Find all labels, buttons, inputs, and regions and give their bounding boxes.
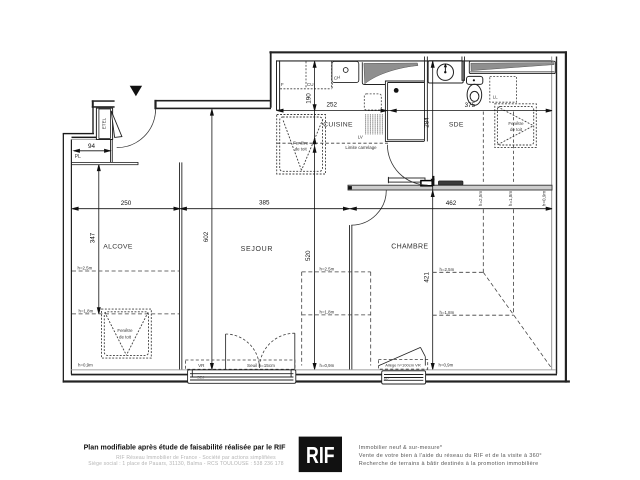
svg-text:ETEL: ETEL [102,117,107,129]
svg-text:252: 252 [326,102,337,109]
svg-text:de toit: de toit [295,147,308,152]
svg-text:CUISINE: CUISINE [323,122,353,129]
svg-text:h=2,5m: h=2,5m [440,267,455,272]
svg-text:h=1,8m: h=1,8m [508,191,513,207]
svg-text:94: 94 [88,143,96,150]
svg-text:Immobilier neuf & sur-mesure*: Immobilier neuf & sur-mesure* [359,445,443,451]
svg-text:LV: LV [358,135,363,140]
svg-text:SDE: SDE [449,122,464,129]
svg-text:Fenêtre: Fenêtre [508,121,524,126]
svg-text:190: 190 [305,93,312,104]
svg-text:CHAMBRE: CHAMBRE [391,244,428,251]
svg-text:LL: LL [493,95,499,100]
svg-text:ALCOVE: ALCOVE [103,244,133,251]
svg-text:h=0,9m: h=0,9m [78,362,93,367]
svg-text:385: 385 [259,200,270,207]
svg-text:h=2,5m: h=2,5m [478,191,483,207]
svg-text:Recherche de terrains à bâtir: Recherche de terrains à bâtir destinés à… [359,461,539,467]
svg-text:Vente de votre bien à l'aide d: Vente de votre bien à l'aide du réseau d… [359,453,542,459]
svg-text:375: 375 [465,102,476,109]
svg-text:CU: CU [307,82,314,87]
svg-text:RIF Réseau Immobilier de Fran: RIF Réseau Immobilier de France - Sociét… [116,455,276,461]
svg-text:h=2,5m: h=2,5m [320,267,335,272]
svg-text:520: 520 [305,250,312,261]
svg-text:h=1,8m: h=1,8m [79,308,94,313]
svg-text:de toit: de toit [119,334,132,339]
svg-text:h=1,8m: h=1,8m [440,310,455,315]
svg-text:Fenêtre: Fenêtre [117,328,133,333]
svg-text:Allège h=100cm VR: Allège h=100cm VR [385,362,421,367]
svg-text:250: 250 [121,200,132,207]
svg-text:Plan modifiable après étude de: Plan modifiable après étude de faisabili… [84,443,287,451]
svg-text:h=0,9m: h=0,9m [320,363,335,368]
svg-text:AV: AV [384,377,389,382]
svg-text:de toit: de toit [510,127,523,132]
svg-text:h=1,8m: h=1,8m [320,309,335,314]
svg-text:SEJOUR: SEJOUR [241,246,274,253]
svg-text:Limite carrelage: Limite carrelage [345,145,377,150]
svg-text:h=2,5m: h=2,5m [78,266,93,271]
svg-text:421: 421 [424,272,431,283]
svg-text:SEJ: SEJ [197,374,204,379]
svg-text:h=0,9m: h=0,9m [439,363,454,368]
svg-text:VR: VR [198,363,205,368]
svg-text:347: 347 [90,232,97,243]
svg-text:Siège social : 1 place de Paua: Siège social : 1 place de Pauars, 31130,… [88,461,283,467]
svg-text:h=0,9m: h=0,9m [542,191,547,207]
svg-text:602: 602 [203,231,210,242]
svg-text:Seuil h=15cm: Seuil h=15cm [247,363,275,368]
svg-text:284: 284 [423,117,430,128]
svg-text:462: 462 [446,200,457,207]
svg-text:RIF: RIF [306,442,335,468]
svg-text:F: F [281,82,284,87]
svg-text:PL: PL [75,154,81,160]
